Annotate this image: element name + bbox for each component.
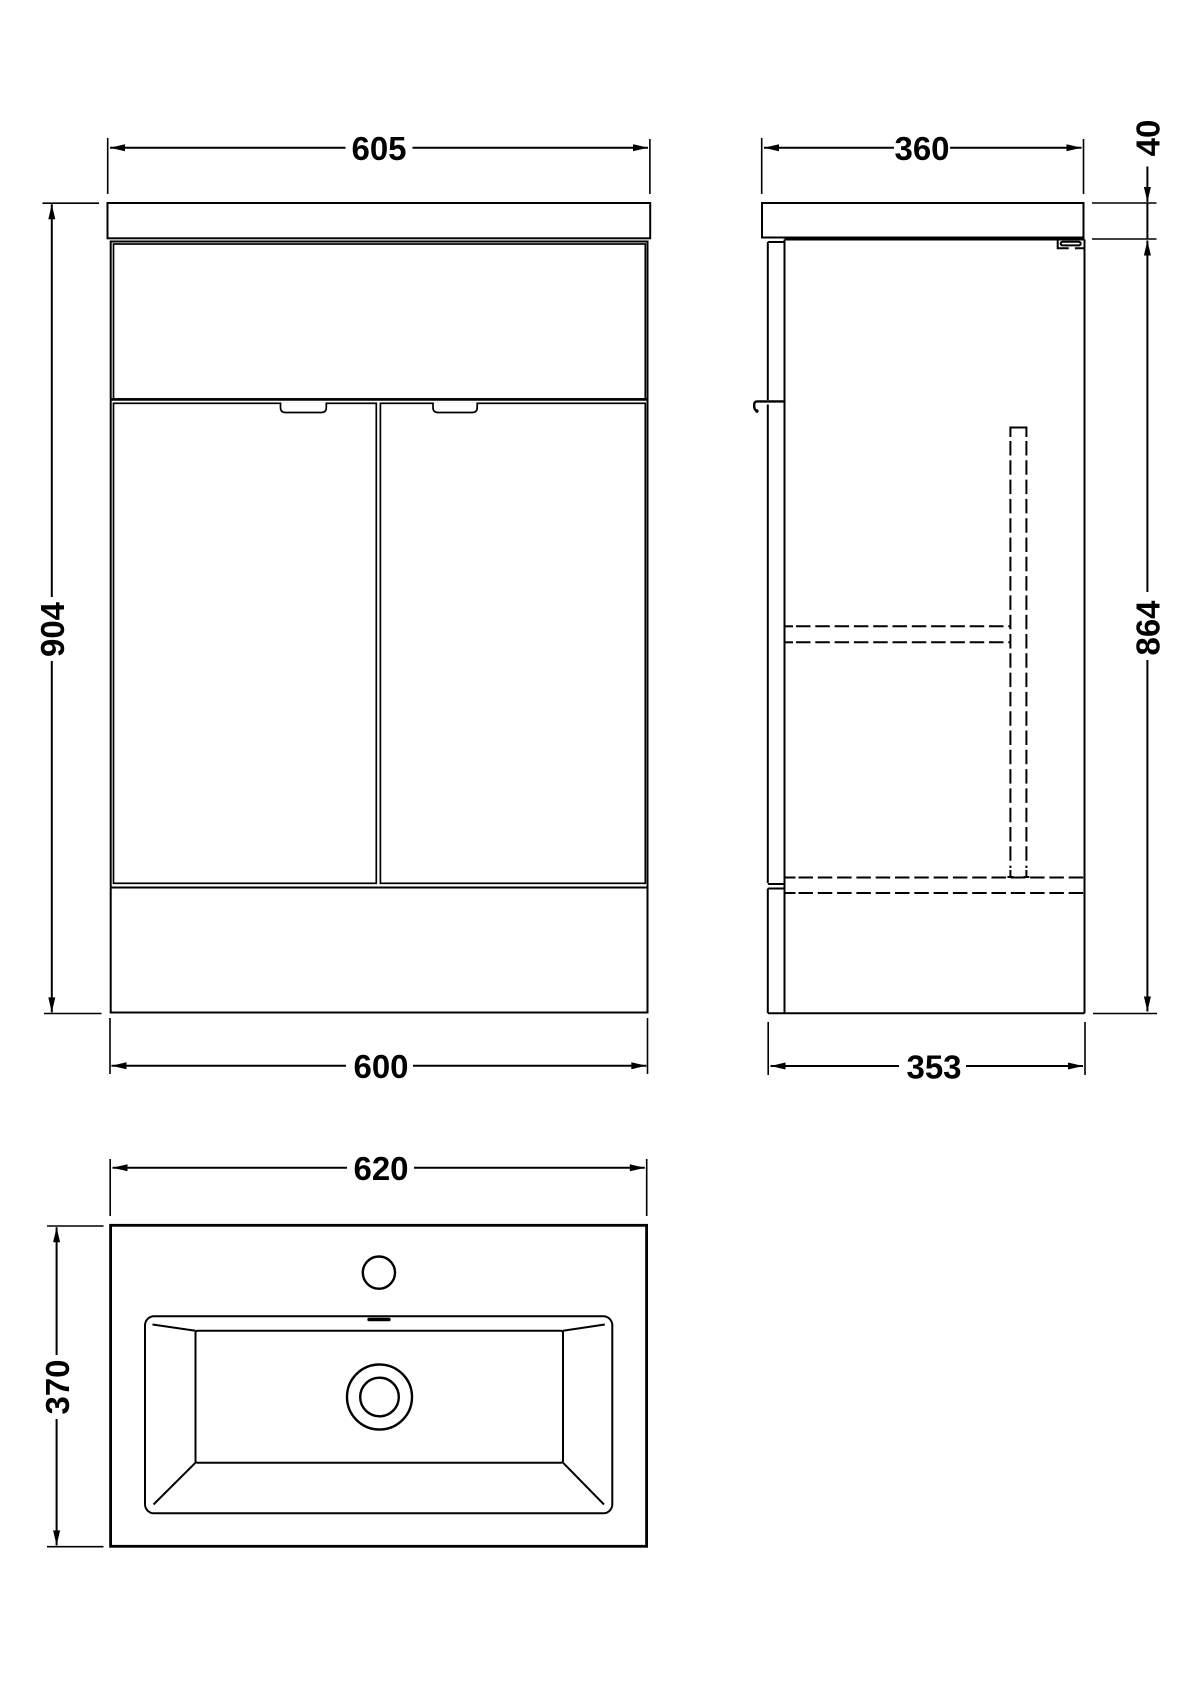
svg-text:360: 360 xyxy=(894,130,949,167)
svg-text:370: 370 xyxy=(39,1359,76,1414)
svg-text:605: 605 xyxy=(351,130,406,167)
svg-text:40: 40 xyxy=(1130,120,1167,157)
svg-text:864: 864 xyxy=(1130,600,1167,656)
svg-text:600: 600 xyxy=(353,1048,408,1085)
svg-text:904: 904 xyxy=(34,601,71,657)
svg-text:353: 353 xyxy=(906,1048,961,1085)
svg-text:620: 620 xyxy=(353,1150,408,1187)
